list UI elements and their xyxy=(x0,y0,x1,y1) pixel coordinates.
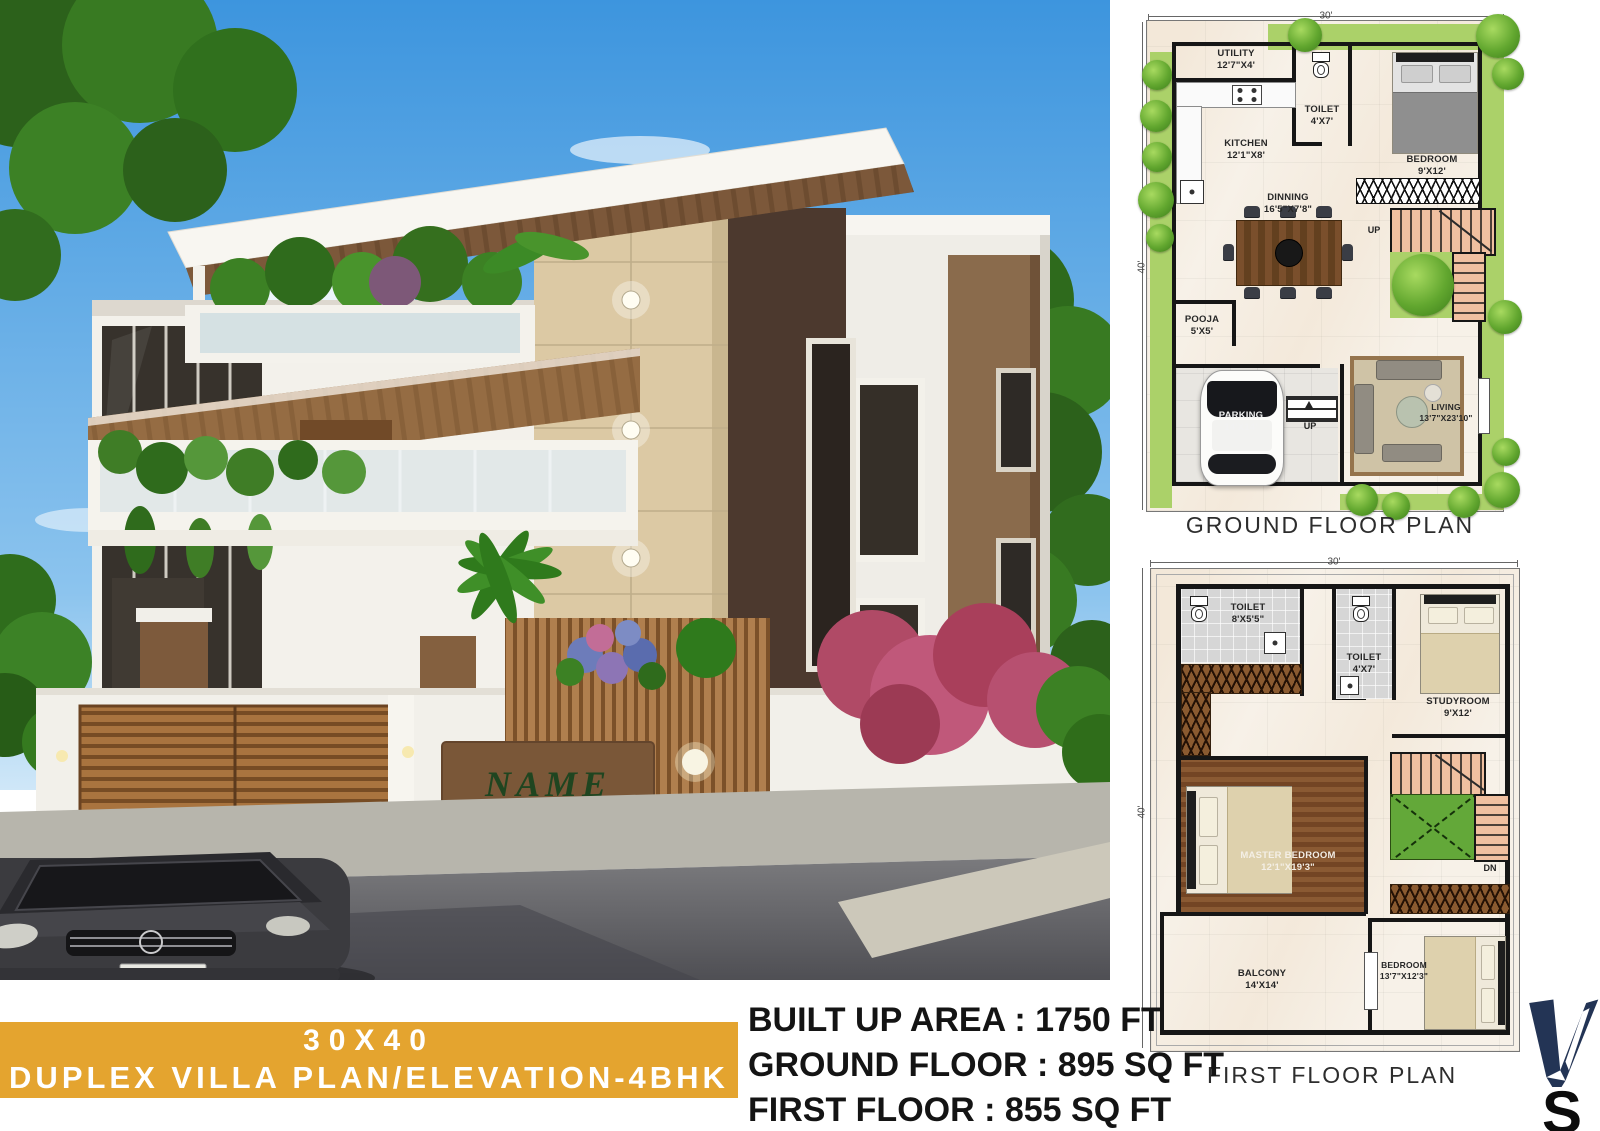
room-label-toilet2-ff: TOILET4'X7' xyxy=(1347,652,1382,677)
room-label-bedroom: BEDROOM9'X12' xyxy=(1406,154,1457,179)
ground-floor-plan: 30' 40' xyxy=(1140,12,1512,524)
brand-logo: S xyxy=(1524,995,1600,1131)
room-label-bedroom-ff: BEDROOM13'7"X12'3" xyxy=(1380,960,1428,982)
room-label-master-bedroom: MASTER BEDROOM12'1"X19'3" xyxy=(1240,850,1335,875)
stove-icon xyxy=(1232,85,1262,105)
stair-up-label: UP xyxy=(1368,225,1381,235)
dim-width-label-ff: 30' xyxy=(1327,557,1340,568)
dim-height-label-ff: 40' xyxy=(1137,805,1148,818)
toilet-icon xyxy=(1312,52,1330,78)
spec-first-floor: FIRST FLOOR : 855 SQ FT xyxy=(748,1088,1224,1131)
sink-icon-2 xyxy=(1264,632,1286,654)
wardrobe-2 xyxy=(1181,664,1302,694)
room-label-toilet-ff: TOILET8'X5'5" xyxy=(1231,602,1266,627)
ground-floor-plan-title: GROUND FLOOR PLAN xyxy=(1186,512,1474,539)
headlight-2 xyxy=(266,916,310,936)
bed-icon-bedroom xyxy=(1424,936,1506,1030)
toilet-icon-3 xyxy=(1352,596,1370,622)
living-door xyxy=(1478,378,1490,434)
sink-icon xyxy=(1180,180,1204,204)
first-floor-plan-title: FIRST FLOOR PLAN xyxy=(1207,1062,1457,1089)
balcony-door xyxy=(1364,952,1378,1010)
title-banner: 30X40 DUPLEX VILLA PLAN/ELEVATION-4BHK xyxy=(0,1022,738,1098)
toilet-icon-2 xyxy=(1190,596,1208,622)
bed-icon-study xyxy=(1420,594,1500,694)
bed-icon xyxy=(1392,52,1478,154)
room-label-studyroom: STUDYROOM9'X12' xyxy=(1426,696,1490,721)
room-label-dinning: DINNING16'5"X7'8" xyxy=(1264,192,1312,217)
staircase-2 xyxy=(1452,252,1486,322)
logo-v-icon xyxy=(1524,995,1600,1087)
staircase-ff-2 xyxy=(1474,794,1510,862)
area-specs: BUILT UP AREA : 1750 FT GROUND FLOOR : 8… xyxy=(748,998,1224,1131)
room-label-pooja: POOJA5'X5' xyxy=(1185,314,1219,339)
sink-icon-3 xyxy=(1340,676,1359,695)
elevation-render: NAME xyxy=(0,0,1110,980)
room-label-balcony: BALCONY14'X14' xyxy=(1238,968,1286,993)
staircase-ff xyxy=(1390,752,1486,798)
bed-icon-master xyxy=(1186,786,1292,894)
room-label-living: LIVING13'7"X23'10" xyxy=(1419,402,1472,424)
wardrobe-3 xyxy=(1181,692,1211,756)
table-centerpiece xyxy=(1275,239,1303,267)
logo-letter: S xyxy=(1524,1086,1600,1131)
stair-skylight xyxy=(1390,794,1476,860)
wardrobe xyxy=(1356,178,1480,204)
spec-built-up: BUILT UP AREA : 1750 FT xyxy=(748,998,1224,1043)
room-label-parking: PARKING14'X14' xyxy=(1219,410,1264,435)
banner-title: DUPLEX VILLA PLAN/ELEVATION-4BHK xyxy=(9,1059,729,1096)
room-label-utility: UTILITY12'7"X4' xyxy=(1217,48,1255,73)
car xyxy=(0,852,375,980)
banner-size: 30X40 xyxy=(303,1024,435,1059)
room-label-kitchen: KITCHEN12'1"X8' xyxy=(1224,138,1268,163)
poster: NAME xyxy=(0,0,1600,1131)
room-label-toilet: TOILET4'X7' xyxy=(1305,104,1340,129)
wardrobe-4 xyxy=(1390,884,1510,914)
tree-icon xyxy=(1392,254,1454,316)
spec-ground-floor: GROUND FLOOR : 895 SQ FT xyxy=(748,1043,1224,1088)
stair-dn-label: DN xyxy=(1484,863,1497,873)
entry-up-label: UP xyxy=(1304,421,1317,431)
